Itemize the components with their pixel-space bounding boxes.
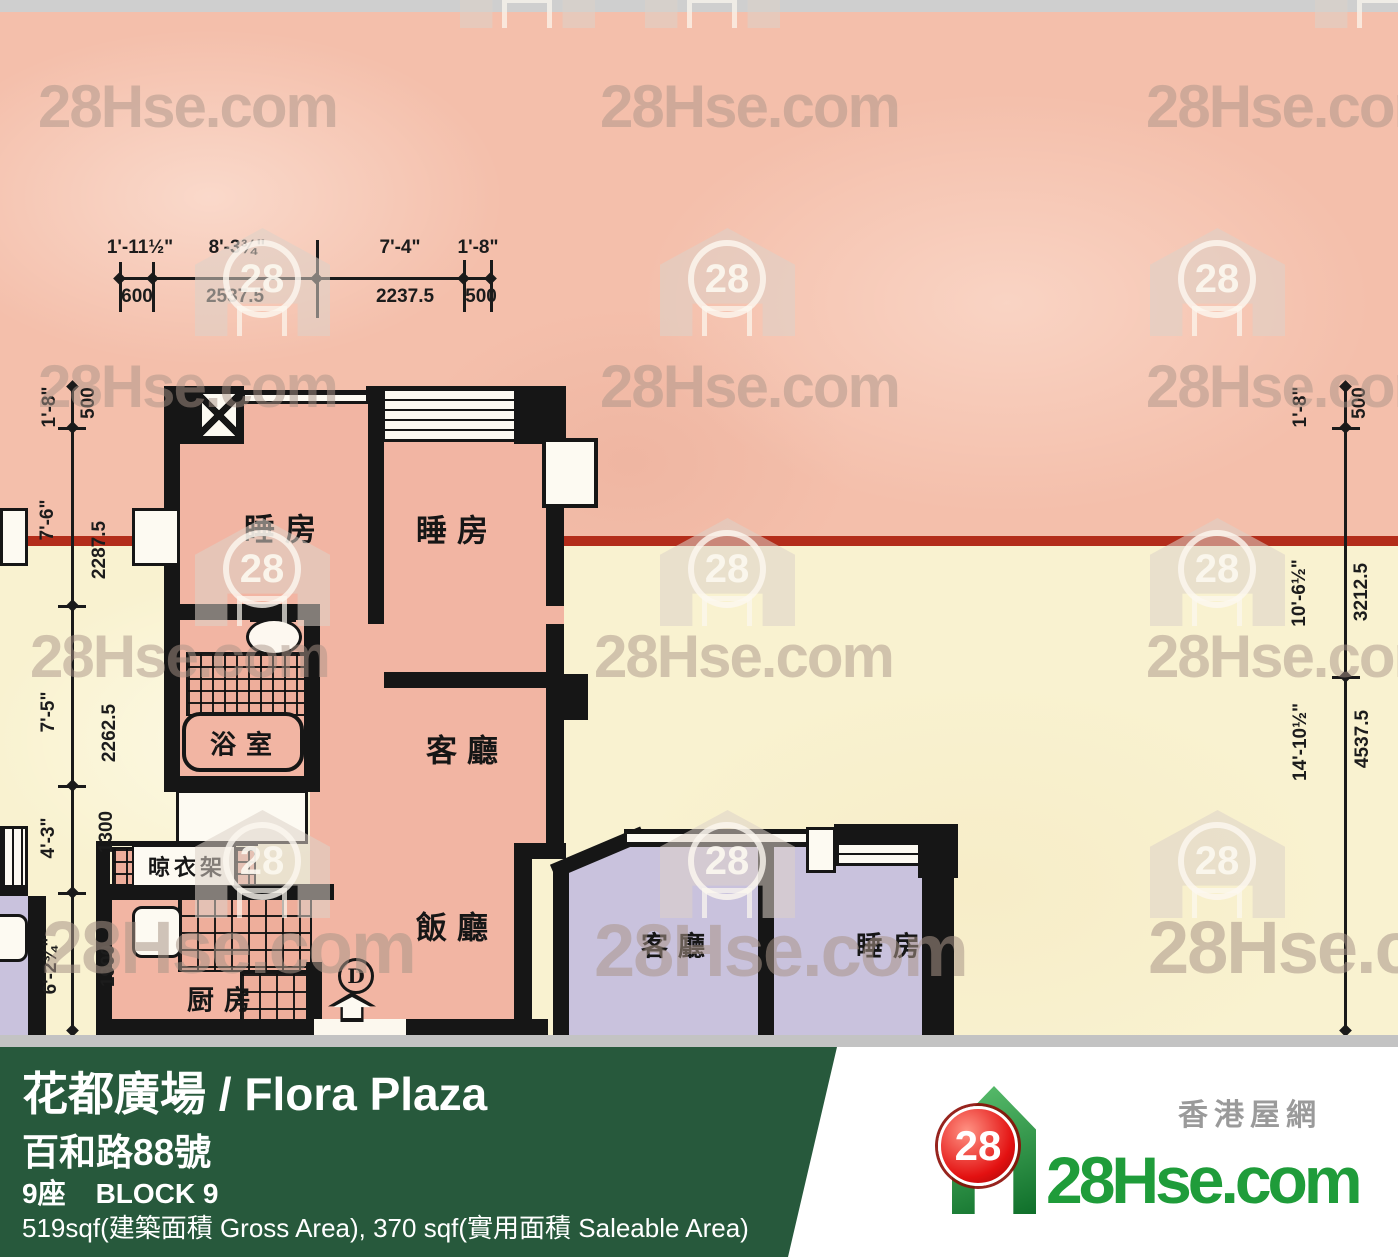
watermark-door — [237, 596, 287, 626]
estate-title: 花都廣場 / Flora Plaza — [22, 1058, 487, 1124]
dimension-label: 2237.5 — [376, 286, 434, 308]
dimension-label: 14'-10½" — [1290, 703, 1312, 781]
adjacent-window-box — [806, 827, 836, 873]
exterior-wall-right — [546, 624, 564, 854]
watermark-door — [702, 306, 752, 336]
living-window-box — [542, 438, 598, 508]
estate-block-cn: 9座 — [22, 1178, 66, 1209]
dimension-label: 4'-3" — [38, 818, 60, 859]
watermark-text: 28Hse.com — [594, 622, 893, 691]
estate-block-en: BLOCK 9 — [96, 1178, 219, 1209]
watermark-logo: 28 — [195, 518, 330, 626]
watermark-text: 28Hse.com — [1146, 72, 1398, 141]
dimension-label: 3212.5 — [1351, 563, 1373, 621]
watermark-logo: 28 — [660, 810, 795, 918]
watermark-logo — [1315, 0, 1398, 28]
watermark-logo: 28 — [660, 228, 795, 336]
watermark-logo: 28 — [1150, 228, 1285, 336]
bathroom-bottom-wall — [164, 776, 320, 792]
watermark-door — [502, 0, 552, 28]
estate-area-info: 519sqf(建築面積 Gross Area), 370 sqf(實用面積 Sa… — [22, 1208, 749, 1245]
watermark-logo: 28 — [1150, 518, 1285, 626]
dining-right-wall — [514, 857, 532, 1035]
dimension-label: 500 — [465, 286, 497, 308]
watermark-text: 28Hse.com — [600, 72, 899, 141]
dimension-label: 2262.5 — [99, 704, 121, 762]
watermark-door — [702, 888, 752, 918]
boundary-window-box — [0, 508, 28, 566]
bottom-gray-strip — [0, 1035, 1398, 1047]
watermark-door — [1192, 306, 1242, 336]
adjacent-left-wall — [553, 866, 569, 1035]
watermark-door — [1192, 888, 1242, 918]
watermark-door — [237, 306, 287, 336]
watermark-logo: 28 — [660, 518, 795, 626]
watermark-door — [237, 888, 287, 918]
watermark-text: 28Hse.com — [594, 908, 967, 993]
left-unit-fixture — [0, 914, 28, 962]
estate-block: 9座BLOCK 9 — [22, 1172, 218, 1212]
dimension-label: 4537.5 — [1352, 710, 1374, 768]
watermark-text: 28Hse.com — [1146, 622, 1398, 691]
exterior-wall-right — [546, 504, 564, 606]
watermark-text: 28Hse.com — [1146, 352, 1398, 421]
left-unit-window — [0, 826, 28, 888]
watermark-logo: 28 — [1150, 810, 1285, 918]
floorplan-page: D 1'-11½" 8'-3¾" 7'-4" 1'-8" 600 2537.5 … — [0, 0, 1398, 1257]
dimension-label: 2287.5 — [89, 521, 111, 579]
dimension-label: 7'-4" — [380, 237, 421, 259]
watermark-door — [702, 596, 752, 626]
brand-wordmark: 28Hse.com — [1046, 1142, 1359, 1218]
watermark-door — [1192, 596, 1242, 626]
watermark-logo — [645, 0, 780, 28]
wall-segment — [0, 886, 28, 896]
watermark-text: 28Hse.com — [30, 622, 329, 691]
dimension-label: 10'-6½" — [1289, 559, 1311, 626]
room-label-bathroom: 浴室 — [200, 725, 282, 762]
dimension-label: 1300 — [96, 811, 118, 853]
brand-chinese-name: 香港屋網 — [1178, 1090, 1322, 1134]
exterior-wall-left — [164, 386, 180, 792]
dimension-label: 1'-11½" — [107, 237, 173, 259]
wall-segment — [514, 386, 566, 444]
brand-badge: 28 — [938, 1106, 1018, 1186]
watermark-logo — [460, 0, 595, 28]
estate-address: 百和路88號 — [22, 1122, 211, 1176]
dimension-label: 1'-8" — [458, 237, 499, 259]
bedroom-b-window — [382, 386, 518, 442]
watermark-door — [1357, 0, 1398, 28]
boundary-window-box — [132, 508, 180, 566]
watermark-text: 28Hse.com — [38, 72, 337, 141]
watermark-logo: 28 — [195, 228, 330, 336]
watermark-text: 28Hse.com — [38, 352, 337, 421]
dimension-label: 7'-5" — [38, 692, 60, 733]
room-label-dining: 飯廳 — [406, 903, 498, 948]
bedroom-divider-wall — [368, 390, 384, 624]
watermark-door — [687, 0, 737, 28]
watermark-text: 28Hse.com — [600, 352, 899, 421]
dimension-label: 600 — [121, 286, 153, 308]
dimension-label: 7'-6" — [37, 500, 59, 541]
living-divider-wall — [384, 672, 550, 688]
room-label-living: 客廳 — [416, 726, 508, 771]
watermark-logo: 28 — [195, 810, 330, 918]
room-label-bedroom: 睡房 — [406, 506, 498, 551]
wall-pier — [546, 674, 588, 720]
